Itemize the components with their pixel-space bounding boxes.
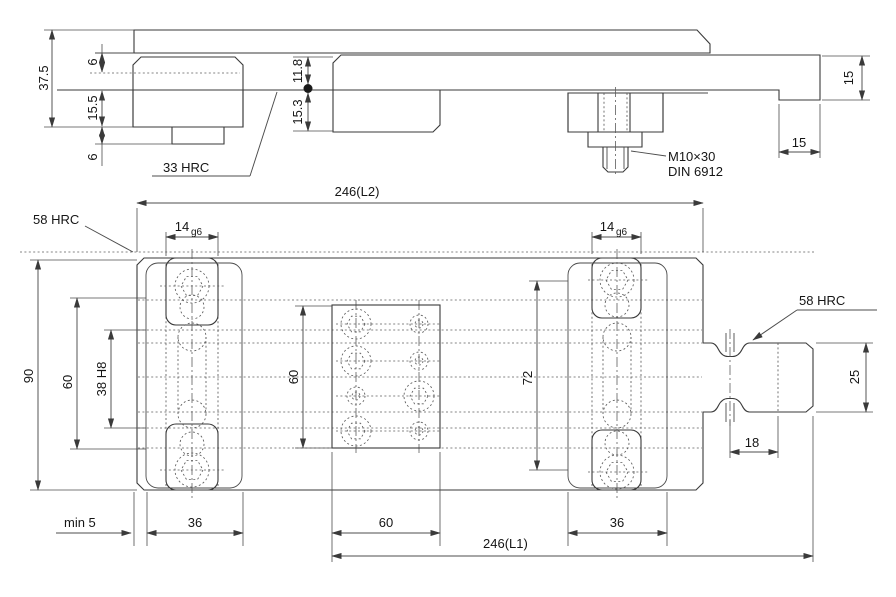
pocket-right-bottom bbox=[592, 430, 641, 490]
datum-dot bbox=[304, 84, 313, 93]
right-band bbox=[568, 263, 667, 488]
rail-top-strip bbox=[134, 30, 710, 53]
dim-60c-label: 60 bbox=[286, 370, 301, 384]
hole-block bbox=[332, 305, 440, 448]
dim-18-label: 18 bbox=[745, 435, 759, 450]
screw-standard-label: DIN 6912 bbox=[668, 164, 723, 179]
bolt-block-left bbox=[568, 93, 598, 132]
dim-72-label: 72 bbox=[520, 371, 535, 385]
drawing-canvas: 37.5 6 15.5 6 11.8 15.3 33 HRC M10×30 DI… bbox=[0, 0, 896, 597]
dim-6t-label: 6 bbox=[85, 58, 100, 65]
dim-6b-label: 6 bbox=[85, 153, 100, 160]
screw-leader bbox=[631, 151, 666, 156]
hardness-58-left-label: 58 HRC bbox=[33, 212, 79, 227]
dim-l2-label: 246(L2) bbox=[335, 184, 380, 199]
hardness-58-right-leader bbox=[753, 310, 797, 340]
left-clamp-outline bbox=[133, 57, 243, 127]
hardness-33-label: 33 HRC bbox=[163, 160, 209, 175]
dim-38-label: 38 H8 bbox=[94, 362, 109, 397]
bolt-head bbox=[588, 132, 642, 147]
section-view: 37.5 6 15.5 6 11.8 15.3 33 HRC M10×30 DI… bbox=[36, 30, 870, 179]
dim-60l-label: 60 bbox=[60, 375, 75, 389]
hardness-58-right-label: 58 HRC bbox=[799, 293, 845, 308]
dim-14r-fit: g6 bbox=[616, 227, 628, 238]
clamp-foot bbox=[172, 127, 224, 144]
dim-36r-label: 36 bbox=[610, 515, 624, 530]
dim-90-label: 90 bbox=[21, 369, 36, 383]
bolt-block-right bbox=[630, 93, 663, 132]
dim-60b-label: 60 bbox=[379, 515, 393, 530]
dim-min5-label: min 5 bbox=[64, 515, 96, 530]
technical-drawing-page: 37.5 6 15.5 6 11.8 15.3 33 HRC M10×30 DI… bbox=[0, 0, 896, 597]
mid-block bbox=[333, 90, 440, 132]
dim-155-label: 15.5 bbox=[85, 95, 100, 120]
dim-25-label: 25 bbox=[847, 370, 862, 384]
hardness-33-leader bbox=[250, 92, 277, 176]
pocket-right-top bbox=[592, 258, 641, 318]
dim-15h-label: 15 bbox=[792, 135, 806, 150]
left-clamp-hatch bbox=[133, 90, 243, 127]
screw-spec-label: M10×30 bbox=[668, 149, 715, 164]
dim-36l-label: 36 bbox=[188, 515, 202, 530]
hardness-58-left-leader bbox=[85, 226, 133, 252]
dim-l1-label: 246(L1) bbox=[483, 536, 528, 551]
dim-14l-value: 14 bbox=[175, 219, 189, 234]
plate-outline bbox=[137, 258, 813, 490]
dim-375-label: 37.5 bbox=[36, 65, 51, 90]
plan-view: 246(L2) 58 HRC 14 g6 14 g6 58 HRC 90 60 … bbox=[20, 184, 877, 562]
dim-14r-value: 14 bbox=[600, 219, 614, 234]
left-band bbox=[146, 263, 242, 488]
dim-118-label: 11.8 bbox=[290, 59, 305, 83]
dim-153-label: 15.3 bbox=[290, 99, 305, 124]
dim-14l-fit: g6 bbox=[191, 227, 203, 238]
dim-15v-label: 15 bbox=[841, 71, 856, 85]
